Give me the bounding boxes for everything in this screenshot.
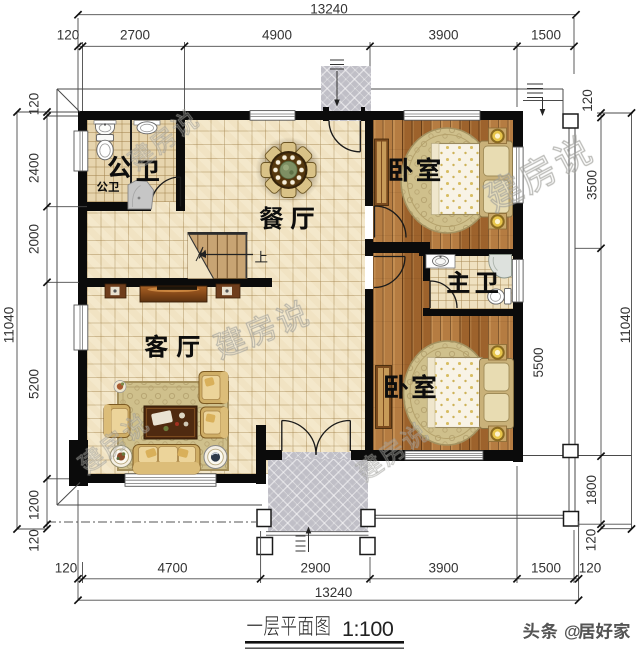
svg-text:5500: 5500	[531, 347, 546, 377]
svg-text:120: 120	[57, 28, 80, 43]
svg-text:120: 120	[584, 529, 599, 552]
svg-text:2000: 2000	[27, 224, 42, 254]
svg-text:1500: 1500	[531, 561, 561, 576]
svg-text:3900: 3900	[428, 561, 458, 576]
svg-text:120: 120	[27, 93, 42, 116]
svg-text:1800: 1800	[584, 475, 599, 505]
svg-text:4900: 4900	[262, 28, 292, 43]
svg-text:1500: 1500	[531, 28, 561, 43]
svg-text:1:100: 1:100	[342, 617, 394, 641]
svg-text:13240: 13240	[310, 2, 348, 17]
svg-text:120: 120	[580, 89, 595, 112]
svg-text:2700: 2700	[120, 28, 150, 43]
svg-text:120: 120	[27, 529, 42, 552]
svg-text:4700: 4700	[157, 561, 187, 576]
svg-text:11040: 11040	[618, 307, 633, 344]
svg-text:@: @	[564, 622, 581, 641]
svg-text:120: 120	[579, 561, 602, 576]
svg-text:2400: 2400	[27, 153, 42, 183]
svg-text:13240: 13240	[315, 585, 353, 600]
svg-text:5200: 5200	[27, 369, 42, 399]
svg-text:1200: 1200	[27, 490, 42, 520]
svg-text:11040: 11040	[2, 307, 17, 344]
svg-text:3900: 3900	[428, 28, 458, 43]
svg-text:3500: 3500	[585, 170, 600, 200]
svg-text:2900: 2900	[300, 561, 330, 576]
svg-text:120: 120	[55, 561, 78, 576]
